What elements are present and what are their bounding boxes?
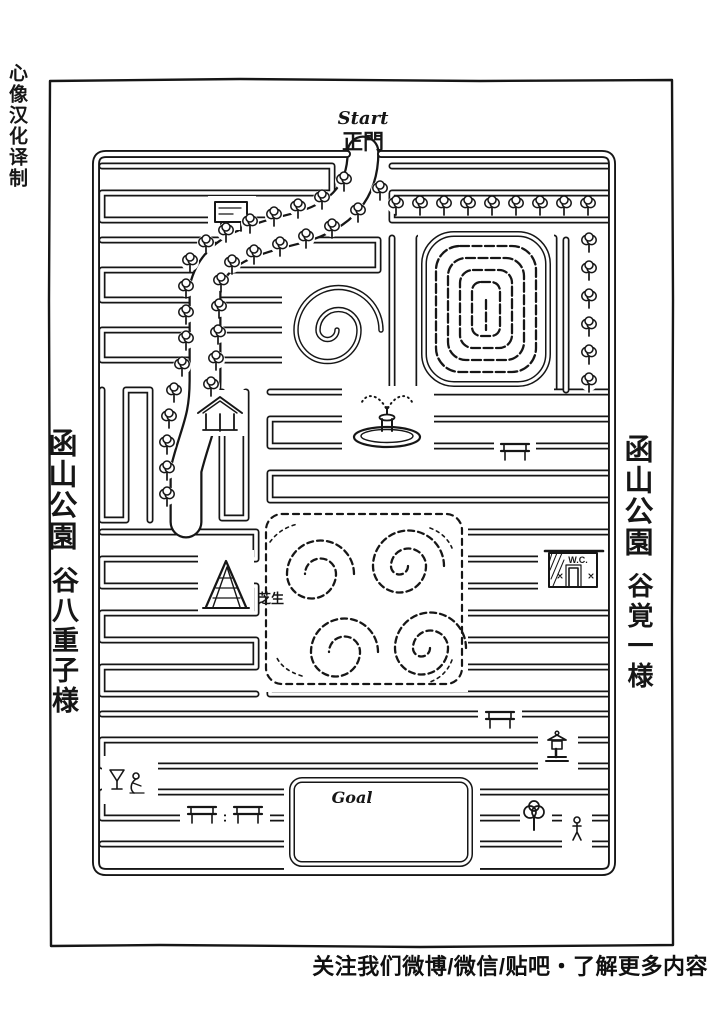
tree-icon [371, 181, 389, 200]
tree-icon [580, 345, 598, 364]
start-label: Start [338, 108, 389, 129]
tree-icon [349, 203, 367, 222]
park-maze-map: Start 正門 Goal W.C. 芝生 [0, 0, 720, 1024]
tree-icon [297, 229, 315, 248]
scanlation-logo: 心像汉化译制 [7, 63, 26, 189]
tree-icon [580, 261, 598, 280]
manga-page: Start 正門 Goal W.C. 芝生 心像汉化译制 函山公園 谷八重子様 … [0, 0, 720, 1024]
tree-icon [435, 196, 453, 215]
main-gate-label: 正門 [342, 131, 384, 154]
tree-icon [173, 357, 191, 376]
tree-icon [483, 196, 501, 215]
tree-icon [531, 196, 549, 215]
tree-icon [165, 383, 183, 402]
tree-icon [579, 196, 597, 215]
addressee-left: 谷八重子様 [49, 566, 76, 716]
tree-icon [580, 289, 598, 308]
tree-icon [507, 196, 525, 215]
park-name-right: 函山公園 [621, 434, 650, 558]
tree-icon [271, 237, 289, 256]
lawn-label: 芝生 [258, 591, 284, 606]
addressee-right: 谷覚一様 [625, 572, 651, 692]
credits-line: 关注我们微博/微信/贴吧・了解更多内容 [312, 949, 708, 981]
tree-icon [580, 317, 598, 336]
tree-icon [459, 196, 477, 215]
tree-icon [580, 233, 598, 252]
tree-icon [411, 196, 429, 215]
tree-icon [555, 196, 573, 215]
wc-label: W.C. [568, 555, 588, 565]
tree-icon [158, 435, 176, 454]
park-name-left: 函山公園 [45, 428, 74, 552]
goal-label: Goal [332, 788, 373, 807]
tree-icon [160, 409, 178, 428]
